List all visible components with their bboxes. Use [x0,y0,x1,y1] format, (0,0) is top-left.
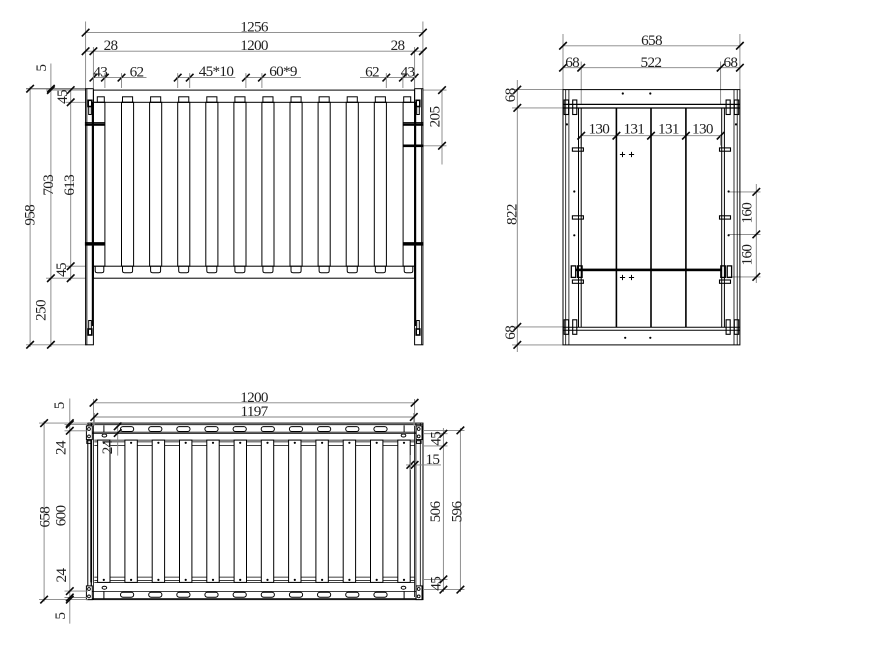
svg-text:822: 822 [503,204,520,225]
svg-text:522: 522 [641,54,662,71]
svg-text:68: 68 [502,87,519,102]
svg-text:45: 45 [54,90,71,104]
svg-text:24: 24 [53,440,70,455]
svg-text:45*10: 45*10 [199,63,235,80]
svg-text:5: 5 [33,65,50,72]
svg-text:160: 160 [739,244,756,266]
svg-text:68: 68 [724,54,739,71]
svg-text:43: 43 [93,63,107,80]
svg-text:28: 28 [104,37,119,54]
svg-text:60*9: 60*9 [269,63,297,80]
svg-text:160: 160 [739,202,756,224]
svg-text:658: 658 [37,506,54,528]
svg-text:15: 15 [426,451,440,468]
svg-text:5: 5 [52,613,69,620]
svg-text:45: 45 [53,263,70,277]
svg-text:596: 596 [448,501,465,523]
svg-text:703: 703 [40,175,57,196]
svg-text:658: 658 [641,32,663,49]
svg-text:613: 613 [61,175,78,196]
svg-text:130: 130 [588,121,610,138]
svg-text:506: 506 [427,501,444,523]
svg-text:5: 5 [51,402,68,409]
svg-text:45: 45 [427,577,444,591]
svg-text:62: 62 [365,63,379,80]
svg-text:68: 68 [565,54,580,71]
svg-text:600: 600 [53,504,70,526]
svg-text:131: 131 [623,121,644,138]
svg-text:1200: 1200 [240,37,269,54]
svg-text:130: 130 [692,121,714,138]
svg-text:205: 205 [426,107,443,128]
svg-text:24: 24 [53,568,70,583]
svg-text:131: 131 [658,121,679,138]
svg-text:68: 68 [502,325,519,340]
svg-text:1197: 1197 [240,403,268,420]
svg-text:45: 45 [427,432,444,446]
svg-text:43: 43 [401,63,415,80]
svg-text:62: 62 [130,63,144,80]
svg-text:958: 958 [22,204,39,226]
svg-text:1256: 1256 [240,19,269,36]
svg-text:24: 24 [99,439,116,454]
svg-text:250: 250 [32,299,49,321]
svg-text:28: 28 [391,37,406,54]
